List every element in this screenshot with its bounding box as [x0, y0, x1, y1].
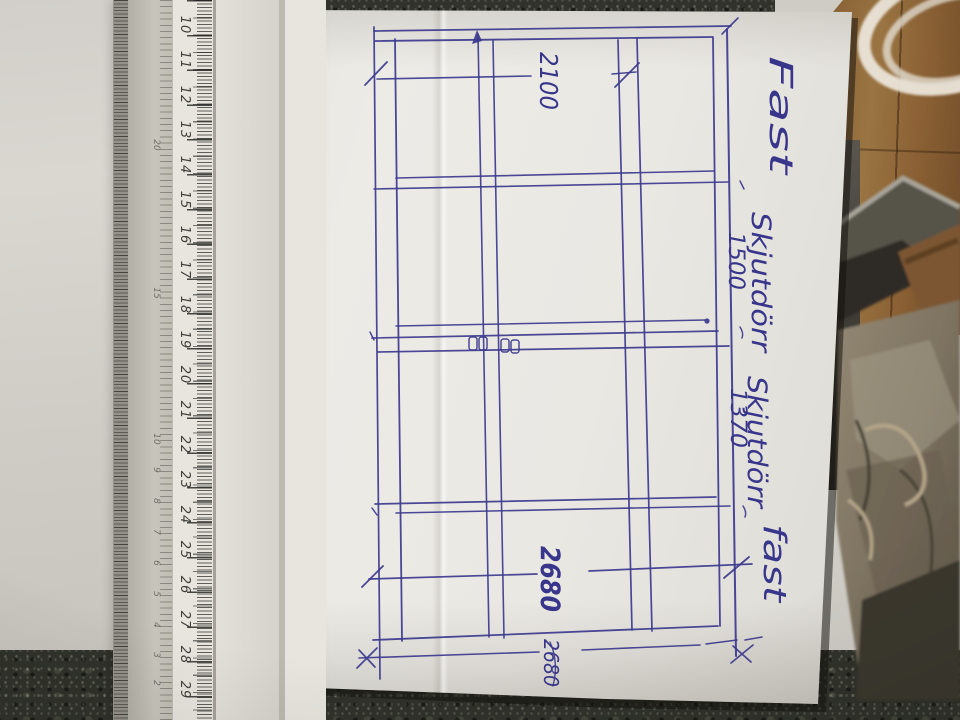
dimension-line-left: [374, 27, 380, 679]
ruler-bevel-number: 2: [151, 672, 161, 694]
frame-edge-left: [395, 39, 402, 641]
frame-outer-right: [727, 29, 736, 656]
dim-cross-arrow: [731, 645, 753, 663]
ink-blot: [704, 318, 709, 323]
meeting-stile-3: [378, 346, 729, 352]
door-handle: [469, 337, 477, 350]
frame-edge-right: [713, 38, 720, 626]
meeting-stile-1: [396, 320, 706, 326]
ruler-bevel-number: 3: [151, 644, 161, 666]
meeting-stile-2: [372, 331, 718, 338]
section-label-fast-bottom: fast: [756, 524, 792, 604]
frame-edge-top: [375, 37, 713, 41]
dim-arrow: [365, 62, 387, 85]
photo-scene: Dörrar höjd 2100 totalBredd 4800 total h…: [0, 0, 960, 720]
dim-label-2680: 2680: [534, 546, 565, 612]
ruler-bevel-number: 6: [151, 552, 161, 574]
ruler-bevel-number: 9: [151, 459, 161, 481]
dim-line-2100: [612, 72, 636, 74]
door-handle: [511, 340, 519, 353]
mullion-1b: [374, 182, 728, 189]
mullion-2a: [375, 497, 716, 504]
section-label-sliding-door-1: Skjutdörr: [745, 212, 776, 354]
ruler-bevel-scale-numbers: 20151098765432: [113, 0, 285, 720]
frame-edge-bottom: [373, 626, 718, 640]
dimension-line-top: [374, 26, 731, 31]
door-top-line-2: [637, 39, 652, 631]
ruler-bevel-number: 7: [151, 521, 161, 543]
dim-line-2100: [377, 76, 531, 79]
mullion-1a: [396, 171, 714, 178]
mullion-2b: [396, 506, 730, 513]
scale-ruler: 1011121314151617181920212223242526272829…: [113, 0, 285, 720]
dim-tick: [740, 181, 744, 189]
dim-line-2680: [369, 574, 537, 579]
ruler-bevel-number: 4: [151, 614, 161, 636]
dim-arrow: [724, 557, 749, 578]
dim-label-1370: 1370: [725, 388, 750, 448]
dim-tick: [372, 508, 377, 515]
dim-line-outer: [706, 637, 762, 644]
ruler-bevel-number: 15: [151, 282, 161, 304]
dim-label-2100: 2100: [534, 52, 563, 110]
dim-line-outer: [582, 645, 700, 650]
pen-arrowhead: [472, 30, 482, 44]
section-label-fast-top: Fast: [762, 56, 800, 177]
dim-line-outer: [359, 652, 539, 658]
ruler-bevel-number: 10: [151, 428, 161, 450]
ruler-bevel-number: 8: [151, 490, 161, 512]
dim-line-2680: [589, 564, 752, 571]
ruler-bevel-number: 20: [151, 134, 161, 156]
door-top-line-1: [618, 40, 632, 630]
ruler-bevel-number: 5: [151, 583, 161, 605]
dim-tick: [740, 327, 743, 338]
dim-label-1500: 1500: [723, 232, 748, 290]
